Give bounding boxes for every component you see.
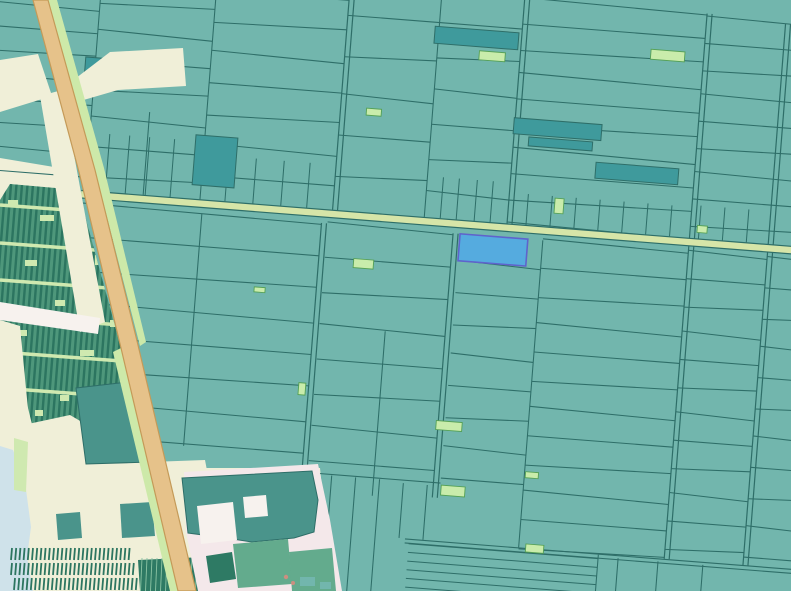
strip-row bbox=[103, 563, 104, 575]
building-footprint bbox=[525, 544, 544, 553]
white-yard bbox=[243, 495, 268, 518]
strip-row bbox=[85, 578, 86, 590]
strip-row bbox=[91, 563, 92, 575]
poi-dot bbox=[291, 581, 295, 585]
strip-row bbox=[82, 548, 83, 560]
building-footprint bbox=[441, 485, 466, 497]
strip-row bbox=[14, 578, 15, 590]
strip-row bbox=[103, 548, 104, 560]
map-viewport[interactable] bbox=[0, 0, 791, 591]
poi-dot bbox=[284, 575, 288, 579]
greenhouse-building bbox=[40, 215, 54, 221]
strip-row bbox=[32, 548, 33, 560]
building-footprint bbox=[254, 287, 265, 293]
strip-row bbox=[116, 548, 117, 560]
strip-row bbox=[36, 563, 37, 575]
strip-row bbox=[45, 548, 46, 560]
strip-row bbox=[39, 578, 40, 590]
strip-row bbox=[45, 563, 46, 575]
strip-row bbox=[24, 563, 25, 575]
greenhouse-building bbox=[8, 200, 18, 207]
strip-row bbox=[43, 578, 44, 590]
strip-row bbox=[66, 548, 67, 560]
building-footprint bbox=[353, 259, 374, 270]
strip-row bbox=[129, 548, 130, 560]
strip-row bbox=[98, 578, 99, 590]
strip-row bbox=[124, 548, 125, 560]
green-yard bbox=[233, 539, 292, 588]
strip-row bbox=[57, 548, 58, 560]
greenhouse-building bbox=[55, 300, 65, 306]
strip-row bbox=[32, 563, 33, 575]
parcel-map[interactable] bbox=[0, 0, 791, 591]
strip-row bbox=[108, 548, 109, 560]
strip-row bbox=[53, 563, 54, 575]
strip-row bbox=[123, 578, 124, 590]
strip-row bbox=[52, 578, 53, 590]
strip-row bbox=[120, 548, 121, 560]
strip-row bbox=[36, 548, 37, 560]
strip-row bbox=[69, 578, 70, 590]
strip-row bbox=[61, 548, 62, 560]
strip-row bbox=[106, 578, 107, 590]
strip-row bbox=[77, 578, 78, 590]
strip-row bbox=[108, 563, 109, 575]
strip-row bbox=[24, 548, 25, 560]
strip-row bbox=[70, 548, 71, 560]
dark-parcel bbox=[192, 135, 238, 188]
strip-row bbox=[102, 578, 103, 590]
strip-row bbox=[11, 548, 12, 560]
strip-row bbox=[56, 578, 57, 590]
strip-row bbox=[95, 548, 96, 560]
strip-row bbox=[116, 563, 117, 575]
strip-row bbox=[66, 563, 67, 575]
strip-row bbox=[61, 563, 62, 575]
strip-row bbox=[49, 563, 50, 575]
small-parcel bbox=[320, 582, 331, 589]
strip-row bbox=[40, 563, 41, 575]
greenhouse-building bbox=[60, 395, 69, 401]
farmstead-building bbox=[56, 512, 82, 540]
strip-row bbox=[87, 563, 88, 575]
strip-row bbox=[28, 548, 29, 560]
building-footprint bbox=[436, 421, 463, 432]
strip-row bbox=[11, 563, 12, 575]
strip-row bbox=[133, 563, 134, 575]
strip-row bbox=[60, 578, 61, 590]
strip-row bbox=[78, 548, 79, 560]
strip-row bbox=[99, 563, 100, 575]
building-footprint bbox=[697, 225, 708, 233]
strip-row bbox=[81, 578, 82, 590]
building-footprint bbox=[554, 198, 564, 214]
strip-row bbox=[120, 563, 121, 575]
strip-row bbox=[22, 578, 23, 590]
strip-row bbox=[18, 578, 19, 590]
dark-green-yard bbox=[206, 552, 236, 583]
strip-row bbox=[64, 578, 65, 590]
strip-row bbox=[15, 563, 16, 575]
strip-row bbox=[78, 563, 79, 575]
strip-row bbox=[48, 578, 49, 590]
farmstead-building bbox=[120, 502, 155, 538]
strip-row bbox=[127, 578, 128, 590]
building-footprint bbox=[366, 108, 382, 116]
selected-parcel[interactable] bbox=[458, 234, 528, 266]
strip-row bbox=[70, 563, 71, 575]
strip-row bbox=[82, 563, 83, 575]
strip-row bbox=[99, 548, 100, 560]
building-footprint bbox=[298, 383, 306, 396]
strip-row bbox=[57, 563, 58, 575]
strip-row bbox=[49, 548, 50, 560]
strip-row bbox=[31, 578, 32, 590]
building-footprint bbox=[525, 472, 538, 479]
strip-row bbox=[40, 548, 41, 560]
strip-row bbox=[136, 578, 137, 590]
strip-row bbox=[74, 563, 75, 575]
strip-row bbox=[124, 563, 125, 575]
building-footprint bbox=[650, 49, 685, 62]
strip-row bbox=[94, 578, 95, 590]
strip-row bbox=[87, 548, 88, 560]
building-footprint bbox=[479, 51, 506, 62]
strip-row bbox=[74, 548, 75, 560]
strip-row bbox=[19, 563, 20, 575]
strip-row bbox=[27, 578, 28, 590]
strip-row bbox=[115, 578, 116, 590]
strip-row bbox=[95, 563, 96, 575]
strip-row bbox=[111, 578, 112, 590]
strip-row bbox=[53, 548, 54, 560]
strip-row bbox=[112, 548, 113, 560]
strip-row bbox=[28, 563, 29, 575]
strip-row bbox=[129, 563, 130, 575]
strip-row bbox=[91, 548, 92, 560]
strip-row bbox=[112, 563, 113, 575]
strip-row bbox=[19, 548, 20, 560]
greenhouse-building bbox=[80, 350, 94, 356]
strip-row bbox=[119, 578, 120, 590]
strip-row bbox=[90, 578, 91, 590]
strip-row bbox=[132, 578, 133, 590]
strip-row bbox=[73, 578, 74, 590]
shore-green-strip bbox=[14, 438, 28, 492]
white-yard bbox=[197, 502, 237, 544]
strip-row bbox=[15, 548, 16, 560]
strip-row bbox=[35, 578, 36, 590]
greenhouse-building bbox=[35, 410, 43, 416]
small-parcel bbox=[300, 577, 315, 586]
greenhouse-building bbox=[25, 260, 37, 266]
